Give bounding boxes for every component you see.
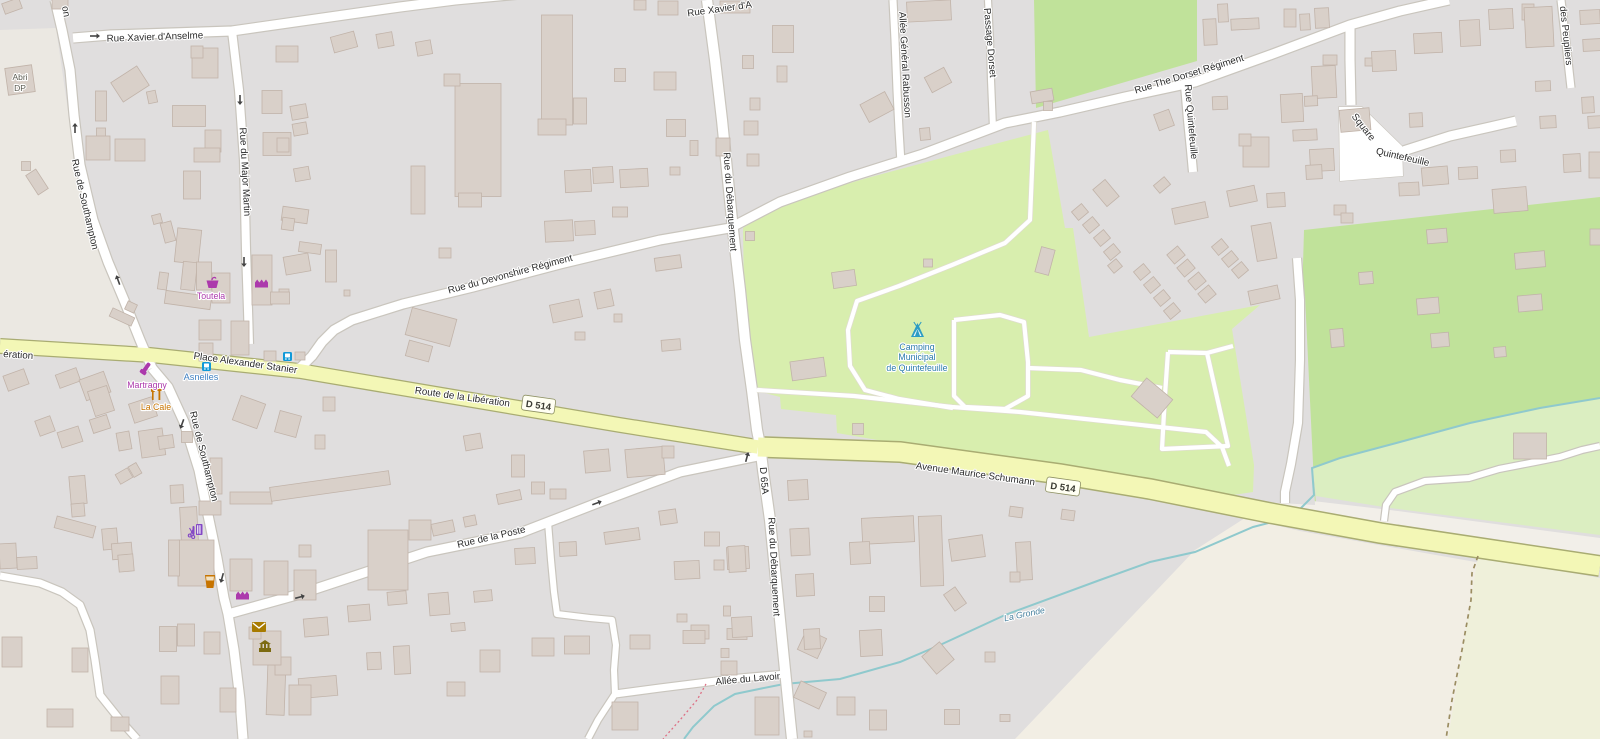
svg-text:Asnelles: Asnelles <box>184 372 219 382</box>
svg-text:Martragny: Martragny <box>127 380 167 390</box>
svg-text:Abri: Abri <box>12 72 27 82</box>
svg-text:on: on <box>59 5 72 18</box>
svg-text:de Quintefeuille: de Quintefeuille <box>886 363 947 373</box>
svg-text:ération: ération <box>3 349 34 362</box>
svg-text:DP: DP <box>14 83 26 93</box>
svg-text:Toutela: Toutela <box>197 291 225 301</box>
svg-text:La Cale: La Cale <box>141 402 171 412</box>
svg-text:Camping: Camping <box>899 342 934 352</box>
svg-text:Municipal: Municipal <box>898 352 935 362</box>
